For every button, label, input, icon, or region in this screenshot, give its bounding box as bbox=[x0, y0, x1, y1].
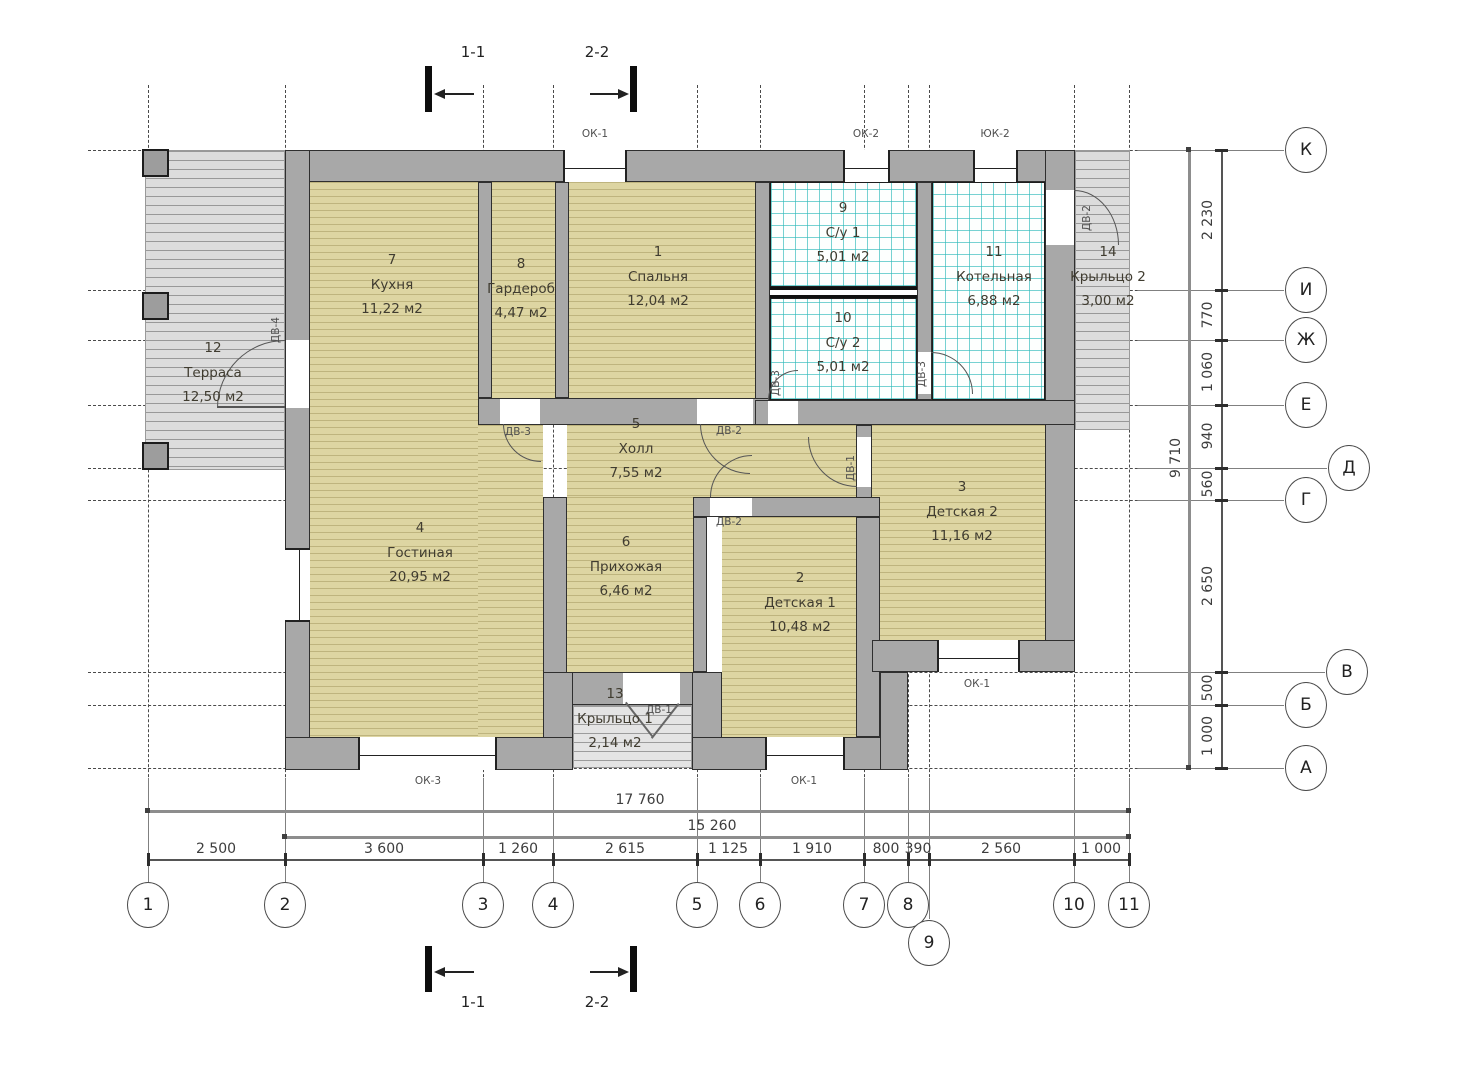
grid-circle-И: И bbox=[1285, 267, 1327, 313]
window-tag-ok2-top: ОК-2 bbox=[853, 128, 879, 140]
room-name: Детская 1 bbox=[764, 591, 836, 616]
room-name: Котельная bbox=[956, 265, 1032, 290]
dim-segment-bottom: 2 615 bbox=[605, 841, 645, 857]
room-area: 7,55 м2 bbox=[609, 461, 662, 486]
dim-tick-right bbox=[1215, 499, 1228, 502]
section-line-2-bottom bbox=[590, 971, 620, 973]
grid-circle-5: 5 bbox=[676, 882, 718, 928]
grid-circle-10: 10 bbox=[1053, 882, 1095, 928]
axis-extension-bottom bbox=[148, 778, 149, 882]
room-name: С/у 1 bbox=[816, 221, 869, 246]
dim-end bbox=[1186, 147, 1191, 152]
room-name: С/у 2 bbox=[816, 331, 869, 356]
axis-extension-bottom bbox=[760, 778, 761, 882]
room-label-porch1: 13 Крыльцо 1 2,14 м2 bbox=[577, 682, 653, 756]
room-number: 12 bbox=[182, 336, 244, 361]
section-label-2-bottom: 2-2 bbox=[585, 993, 610, 1011]
axis-extension-bottom bbox=[864, 778, 865, 882]
terrace-post bbox=[142, 442, 169, 470]
room-label-hall: 5 Холл 7,55 м2 bbox=[609, 412, 662, 486]
wall-bath-divider bbox=[770, 287, 917, 298]
dim-end bbox=[1186, 765, 1191, 770]
dim-segment-right: 2 230 bbox=[1200, 200, 1216, 240]
room-name: Крыльцо 2 bbox=[1070, 265, 1146, 290]
room-area: 2,14 м2 bbox=[577, 731, 653, 756]
dim-segment-right: 2 650 bbox=[1200, 566, 1216, 606]
axis-extension-right bbox=[1138, 290, 1284, 291]
door-tag-child1: ДВ-2 bbox=[716, 516, 742, 528]
dim-segment-bottom: 1 260 bbox=[498, 841, 538, 857]
section-label-2-top: 2-2 bbox=[585, 43, 610, 61]
room-number: 3 bbox=[926, 475, 998, 500]
section-line-1-bottom bbox=[444, 971, 474, 973]
door-tag-bedroom: ДВ-2 bbox=[716, 425, 742, 437]
room-area: 11,16 м2 bbox=[926, 524, 998, 549]
room-number: 8 bbox=[487, 252, 555, 277]
grid-circle-11: 11 bbox=[1108, 882, 1150, 928]
wall-south-bath bbox=[755, 400, 1075, 425]
terrace-post bbox=[142, 149, 169, 177]
dim-tick-bottom bbox=[1128, 853, 1131, 866]
grid-circle-Б: Б bbox=[1285, 682, 1327, 728]
dim-segment-bottom: 1 000 bbox=[1081, 841, 1121, 857]
axis-extension-right bbox=[1138, 500, 1284, 501]
grid-circle-1: 1 bbox=[127, 882, 169, 928]
wall-bedroom-right bbox=[755, 182, 770, 425]
dim-line-total-right bbox=[1188, 150, 1191, 768]
room-number: 7 bbox=[361, 248, 423, 273]
axis-extension-bottom bbox=[908, 778, 909, 882]
dim-tick-bottom bbox=[696, 853, 699, 866]
dim-end bbox=[1126, 808, 1131, 813]
dim-tick-bottom bbox=[1073, 853, 1076, 866]
grid-axis-horizontal-А bbox=[88, 768, 1248, 769]
grid-circle-Г: Г bbox=[1285, 477, 1327, 523]
section-bar-2-top bbox=[630, 66, 637, 112]
dim-line-sub-bottom bbox=[285, 836, 1129, 839]
dim-tick-bottom bbox=[863, 853, 866, 866]
dim-segment-right: 560 bbox=[1200, 471, 1216, 498]
axis-extension-right bbox=[1138, 150, 1284, 151]
dim-segment-bottom: 1 125 bbox=[708, 841, 748, 857]
room-number: 4 bbox=[387, 516, 453, 541]
room-name: Гостиная bbox=[387, 541, 453, 566]
room-area: 10,48 м2 bbox=[764, 615, 836, 640]
dim-tick-right bbox=[1215, 289, 1228, 292]
room-label-bath1: 9 С/у 1 5,01 м2 bbox=[816, 196, 869, 270]
section-label-1-top: 1-1 bbox=[461, 43, 486, 61]
axis-extension-bottom bbox=[483, 778, 484, 882]
living-floor bbox=[478, 425, 543, 737]
dim-line-segments-bottom bbox=[148, 859, 1129, 861]
window-ok1-top bbox=[563, 150, 627, 182]
room-label-porch2: 14 Крыльцо 2 3,00 м2 bbox=[1070, 240, 1146, 314]
room-area: 20,95 м2 bbox=[387, 565, 453, 590]
axis-extension-right bbox=[1138, 705, 1284, 706]
room-area: 6,46 м2 bbox=[590, 579, 662, 604]
section-label-1-bottom: 1-1 bbox=[461, 993, 486, 1011]
room-label-living: 4 Гостиная 20,95 м2 bbox=[387, 516, 453, 590]
room-area: 3,00 м2 bbox=[1070, 289, 1146, 314]
door-tag-entry: ДВ-1 bbox=[646, 704, 672, 716]
dim-segment-right: 1 060 bbox=[1200, 352, 1216, 392]
section-arrow-1-top bbox=[434, 89, 445, 99]
window-ok1-right bbox=[937, 640, 1020, 672]
grid-circle-Д: Д bbox=[1328, 445, 1370, 491]
room-label-bedroom: 1 Спальня 12,04 м2 bbox=[627, 240, 689, 314]
room-number: 9 bbox=[816, 196, 869, 221]
axis-extension-right bbox=[1138, 340, 1284, 341]
grid-circle-2: 2 bbox=[264, 882, 306, 928]
room-label-terrace: 12 Терраса 12,50 м2 bbox=[182, 336, 244, 410]
room-label-child1: 2 Детская 1 10,48 м2 bbox=[764, 566, 836, 640]
room-name: Прихожая bbox=[590, 555, 662, 580]
door-opening-terrace bbox=[286, 340, 309, 408]
wall-wardrobe-bedroom bbox=[555, 182, 569, 398]
dim-tick-right bbox=[1215, 404, 1228, 407]
room-number: 14 bbox=[1070, 240, 1146, 265]
dim-segment-bottom: 2 560 bbox=[981, 841, 1021, 857]
room-name: Холл bbox=[609, 437, 662, 462]
grid-circle-9: 9 bbox=[908, 920, 950, 966]
room-name: Крыльцо 1 bbox=[577, 707, 653, 732]
section-arrow-2-top bbox=[618, 89, 629, 99]
wall-child-divider bbox=[856, 517, 880, 737]
room-area: 12,50 м2 bbox=[182, 385, 244, 410]
room-label-bath2: 10 С/у 2 5,01 м2 bbox=[816, 306, 869, 380]
room-label-wardrobe: 8 Гардероб 4,47 м2 bbox=[487, 252, 555, 326]
dim-tick-right bbox=[1215, 767, 1228, 770]
grid-circle-В: В bbox=[1326, 649, 1368, 695]
dim-line-total-bottom bbox=[148, 810, 1129, 813]
dim-total-bottom: 17 760 bbox=[616, 792, 665, 808]
dim-segment-right: 500 bbox=[1200, 675, 1216, 702]
door-opening-child1 bbox=[710, 498, 752, 516]
section-line-1-top bbox=[444, 93, 474, 95]
door-opening-porch2 bbox=[1046, 190, 1074, 245]
window-yuk2-top bbox=[973, 150, 1018, 182]
dim-segment-right: 1 000 bbox=[1200, 716, 1216, 756]
door-tag-porch2: ДВ-2 bbox=[1081, 205, 1093, 231]
room-area: 12,04 м2 bbox=[627, 289, 689, 314]
room-number: 11 bbox=[956, 240, 1032, 265]
door-tag-wardrobe: ДВ-3 bbox=[505, 426, 531, 438]
axis-extension-bottom bbox=[285, 778, 286, 882]
axis-extension-right bbox=[1138, 405, 1284, 406]
room-label-entry-hall: 6 Прихожая 6,46 м2 bbox=[590, 530, 662, 604]
wall-left bbox=[285, 150, 310, 770]
section-arrow-1-bottom bbox=[434, 967, 445, 977]
room-number: 6 bbox=[590, 530, 662, 555]
window-tag-yuk2-top: ЮК-2 bbox=[980, 128, 1009, 140]
grid-circle-К: К bbox=[1285, 127, 1327, 173]
room-name: Терраса bbox=[182, 361, 244, 386]
section-line-2-top bbox=[590, 93, 620, 95]
window-left-wall bbox=[285, 548, 310, 622]
grid-circle-3: 3 bbox=[462, 882, 504, 928]
room-area: 5,01 м2 bbox=[816, 245, 869, 270]
room-number: 13 bbox=[577, 682, 653, 707]
room-number: 10 bbox=[816, 306, 869, 331]
dim-total-right: 9 710 bbox=[1168, 438, 1184, 478]
grid-circle-7: 7 bbox=[843, 882, 885, 928]
window-ok1-bottom bbox=[765, 737, 845, 770]
dim-end bbox=[145, 808, 150, 813]
dim-tick-bottom bbox=[552, 853, 555, 866]
window-tag-ok1-right: ОК-1 bbox=[964, 678, 990, 690]
door-opening-child2 bbox=[857, 437, 871, 487]
dim-segment-right: 770 bbox=[1200, 302, 1216, 329]
dim-segment-bottom: 2 500 bbox=[196, 841, 236, 857]
grid-circle-А: А bbox=[1285, 745, 1327, 791]
wall-entry-right bbox=[693, 517, 707, 672]
terrace-post bbox=[142, 292, 169, 320]
wall-top bbox=[285, 150, 1075, 182]
section-bar-1-bottom bbox=[425, 946, 432, 992]
room-label-kitchen: 7 Кухня 11,22 м2 bbox=[361, 248, 423, 322]
door-tag-bath2: ДВ-3 bbox=[770, 370, 782, 396]
dim-tick-right bbox=[1215, 149, 1228, 152]
axis-extension-right bbox=[1138, 672, 1325, 673]
room-label-child2: 3 Детская 2 11,16 м2 bbox=[926, 475, 998, 549]
axis-extension-right bbox=[1138, 768, 1284, 769]
dim-segment-right: 940 bbox=[1200, 423, 1216, 450]
window-tag-ok3-bottom: ОК-3 bbox=[415, 775, 441, 787]
door-opening-wardrobe bbox=[500, 399, 540, 424]
room-name: Гардероб bbox=[487, 277, 555, 302]
door-tag-child2: ДВ-1 bbox=[845, 455, 857, 481]
section-bar-2-bottom bbox=[630, 946, 637, 992]
wall-step-corner bbox=[880, 672, 908, 770]
axis-extension-bottom bbox=[1074, 778, 1075, 882]
dim-end bbox=[1126, 834, 1131, 839]
room-number: 2 bbox=[764, 566, 836, 591]
window-tag-ok1-top: ОК-1 bbox=[582, 128, 608, 140]
section-bar-1-top bbox=[425, 66, 432, 112]
axis-extension-bottom bbox=[553, 778, 554, 882]
window-tag-ok1-bottom: ОК-1 bbox=[791, 775, 817, 787]
axis-extension-right bbox=[1138, 468, 1327, 469]
grid-circle-6: 6 bbox=[739, 882, 781, 928]
room-label-boiler: 11 Котельная 6,88 м2 bbox=[956, 240, 1032, 314]
grid-circle-Ж: Ж bbox=[1285, 317, 1327, 363]
dim-tick-bottom bbox=[482, 853, 485, 866]
room-number: 1 bbox=[627, 240, 689, 265]
section-arrow-2-bottom bbox=[618, 967, 629, 977]
dim-end bbox=[282, 834, 287, 839]
dim-tick-bottom bbox=[147, 853, 150, 866]
door-opening-bedroom bbox=[697, 399, 753, 424]
window-ok3-bottom bbox=[358, 737, 497, 770]
door-tag-boiler: ДВ-3 bbox=[916, 361, 928, 387]
dim-sub-bottom: 15 260 bbox=[688, 818, 737, 834]
room-area: 4,47 м2 bbox=[487, 301, 555, 326]
dim-tick-bottom bbox=[759, 853, 762, 866]
floor-plan-sheet: 1 Спальня 12,04 м2 2 Детская 1 10,48 м2 … bbox=[0, 0, 1480, 1080]
room-number: 5 bbox=[609, 412, 662, 437]
room-area: 6,88 м2 bbox=[956, 289, 1032, 314]
dim-line-segments-right bbox=[1221, 150, 1223, 768]
dim-segment-bottom: 3 600 bbox=[364, 841, 404, 857]
dim-tick-bottom bbox=[284, 853, 287, 866]
door-opening-bath2 bbox=[768, 401, 798, 424]
room-name: Детская 2 bbox=[926, 500, 998, 525]
dim-segment-bottom: 1 910 bbox=[792, 841, 832, 857]
dim-segment-bottom: 390 bbox=[905, 841, 932, 857]
room-name: Спальня bbox=[627, 265, 689, 290]
grid-circle-4: 4 bbox=[532, 882, 574, 928]
dim-tick-right bbox=[1215, 339, 1228, 342]
room-area: 11,22 м2 bbox=[361, 297, 423, 322]
grid-circle-Е: Е bbox=[1285, 382, 1327, 428]
dim-segment-bottom: 800 bbox=[873, 841, 900, 857]
door-tag-terrace: ДВ-4 bbox=[270, 317, 282, 343]
window-ok2-top bbox=[843, 150, 890, 182]
dim-tick-right bbox=[1215, 467, 1228, 470]
room-area: 5,01 м2 bbox=[816, 355, 869, 380]
axis-extension-bottom bbox=[1129, 778, 1130, 882]
dim-tick-right bbox=[1215, 704, 1228, 707]
dim-tick-right bbox=[1215, 671, 1228, 674]
room-name: Кухня bbox=[361, 273, 423, 298]
